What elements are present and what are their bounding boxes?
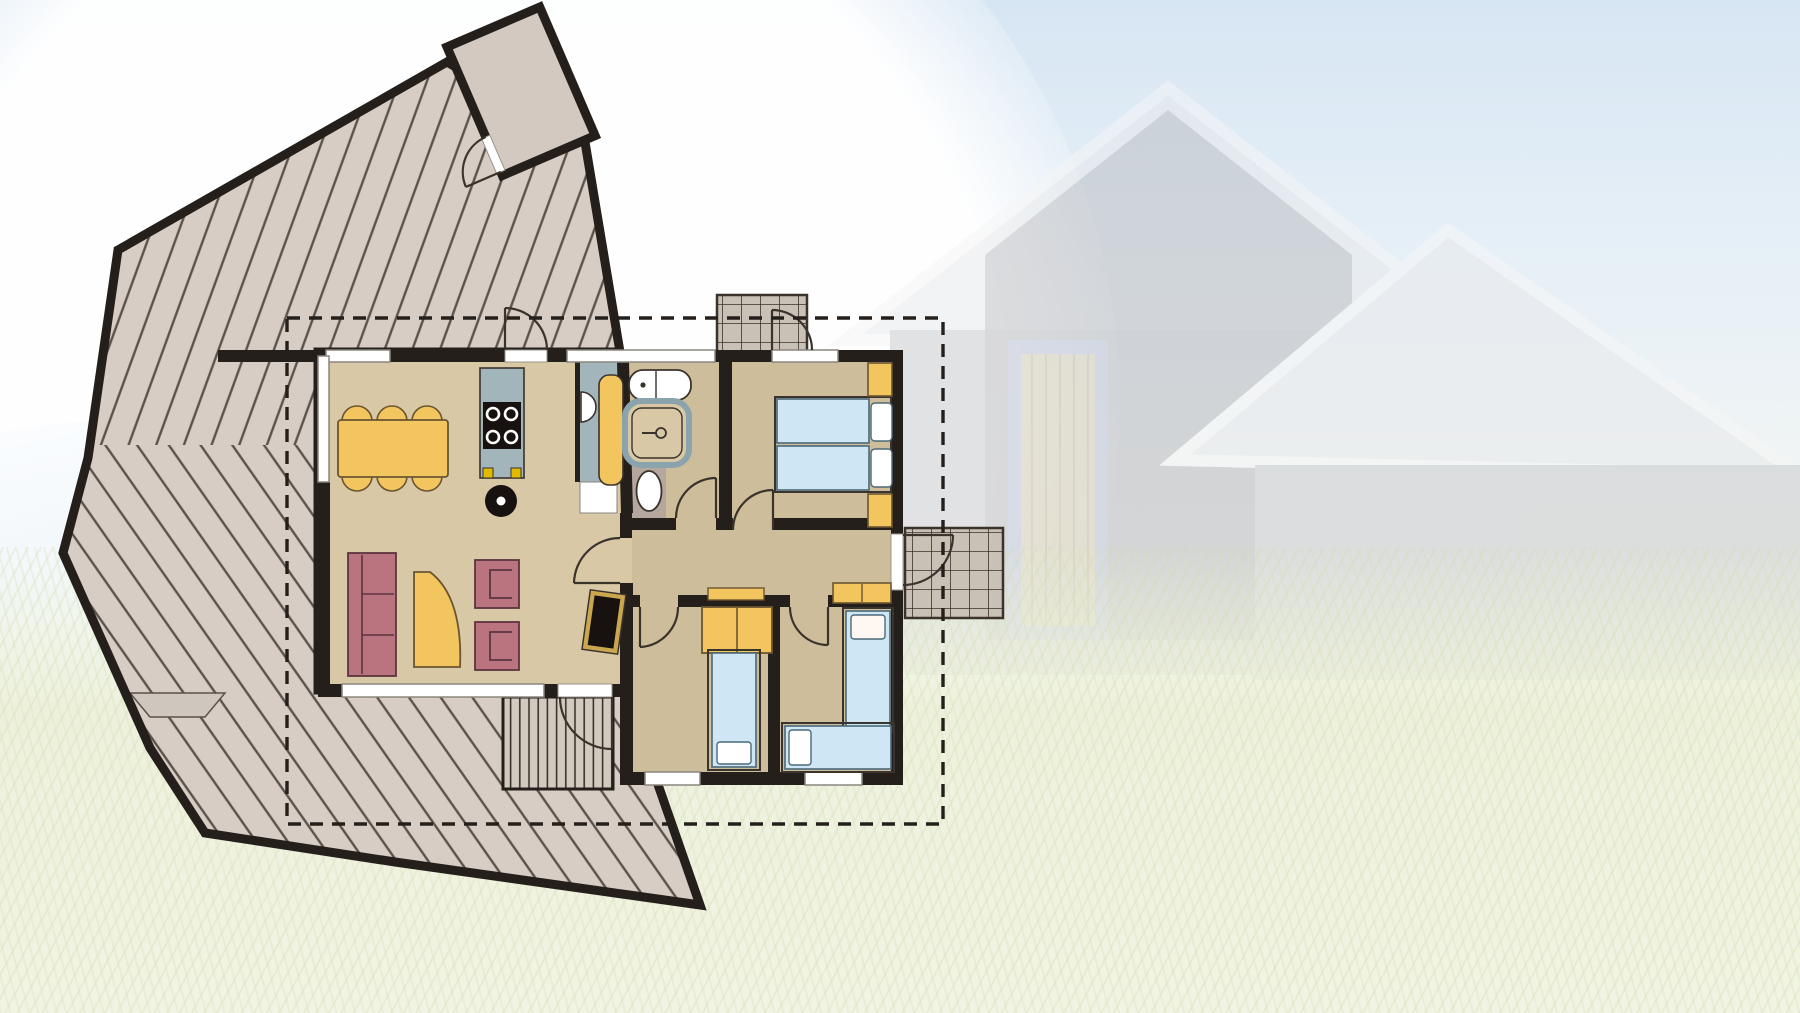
deck-windbreak-wall [218,350,320,362]
sofa [348,553,396,676]
deck-steps [503,697,613,789]
floor-plan [0,0,1800,1013]
window-dining-north [326,350,390,362]
tv-unit [582,590,626,654]
double-bed-mattress-left [777,399,869,443]
pillow [717,742,751,764]
dining-set [338,406,448,491]
window-living-west [318,356,329,482]
dining-table [338,420,448,477]
window-sauna-bath-north [567,350,715,362]
toilet [637,471,662,511]
armchair-top [475,560,519,608]
sauna-bench [599,375,623,485]
wardrobe-top-shelf [708,588,764,600]
door-opening-steps [558,684,612,697]
window-bedroom-south-2 [805,772,862,785]
pillow [851,615,885,639]
pillow [871,403,892,441]
counter-knob-left [483,468,493,478]
counter-knob-right [511,468,521,478]
double-bed-mattress-right [777,446,869,490]
entrance-porch-east [905,528,1003,618]
washbasin-counter [629,370,691,400]
steps-stripes [503,697,613,789]
entrance-porch-north [717,295,807,352]
pillow [789,730,811,765]
door-opening-deck [505,350,547,362]
east-porch-grid [905,528,1003,618]
window-bedroom-south-1 [645,772,700,785]
screenshot-canvas [0,0,1800,1013]
nightstand-bottom [868,494,892,527]
door-opening-east-porch [891,534,903,590]
window-living-south [342,684,544,697]
window-porch-north [772,350,838,362]
nightstand-top [868,363,892,396]
sauna-doorway-mat [580,482,617,513]
armchair-bottom [475,622,519,670]
pillow [871,449,892,487]
north-porch-grid [717,295,807,352]
washbasin-drain [640,382,645,387]
wood-stove-flue [497,497,506,506]
